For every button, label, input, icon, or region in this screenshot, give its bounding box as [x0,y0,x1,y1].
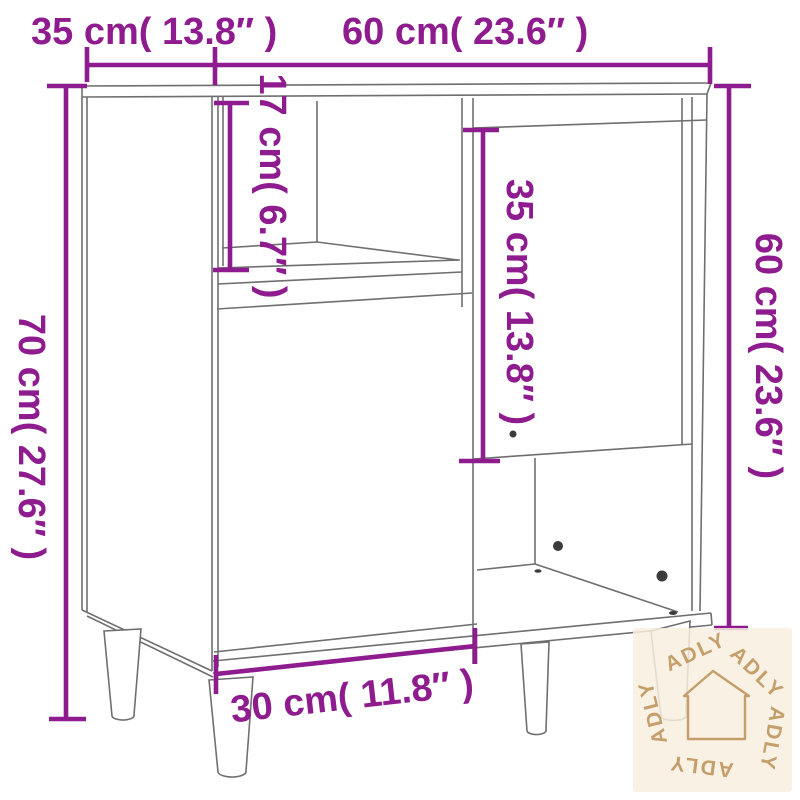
diagram-canvas: ADLY ADLY ADLY ADLY ADLY 35 cm( 13.8″ ) … [0,0,800,800]
left-side-bottom-edge [82,610,212,671]
body-height-dimension-label: 60 cm( 23.6″ ) [744,226,792,486]
watermark: ADLY ADLY ADLY ADLY ADLY [633,628,792,792]
peg-hole-icon [535,569,542,573]
bottom-band-right-cap [711,613,712,625]
top-band-bottom [82,94,707,97]
right-outer-edge [700,94,707,611]
width-dimension-label: 60 cm( 23.6″ ) [342,8,582,56]
dimension-lines [47,47,751,719]
screw-icon [657,571,668,582]
shelf-height-dimension-label: 17 cm( 6.7″ ) [248,56,296,316]
cabinet-wireframe [82,83,712,677]
leg-back-left [104,629,141,720]
door-height-dimension-label: 35 cm( 13.8″ ) [495,172,543,432]
depth-dimension-label: 35 cm( 13.8″ ) [31,8,271,56]
screw-icon [553,541,563,551]
top-edge [82,83,711,86]
top-band-right-cap [707,83,711,94]
peg-hole-icon [669,611,677,615]
dimension-door-height [459,130,500,461]
compartment-floor-front [535,564,678,612]
right-door-bottom-edge [473,444,692,459]
right-door-top-edge [473,120,707,128]
compartment-floor-left [477,564,535,570]
height-dimension-label: 70 cm( 27.6″ ) [7,307,55,567]
leg-back-right [521,642,549,735]
